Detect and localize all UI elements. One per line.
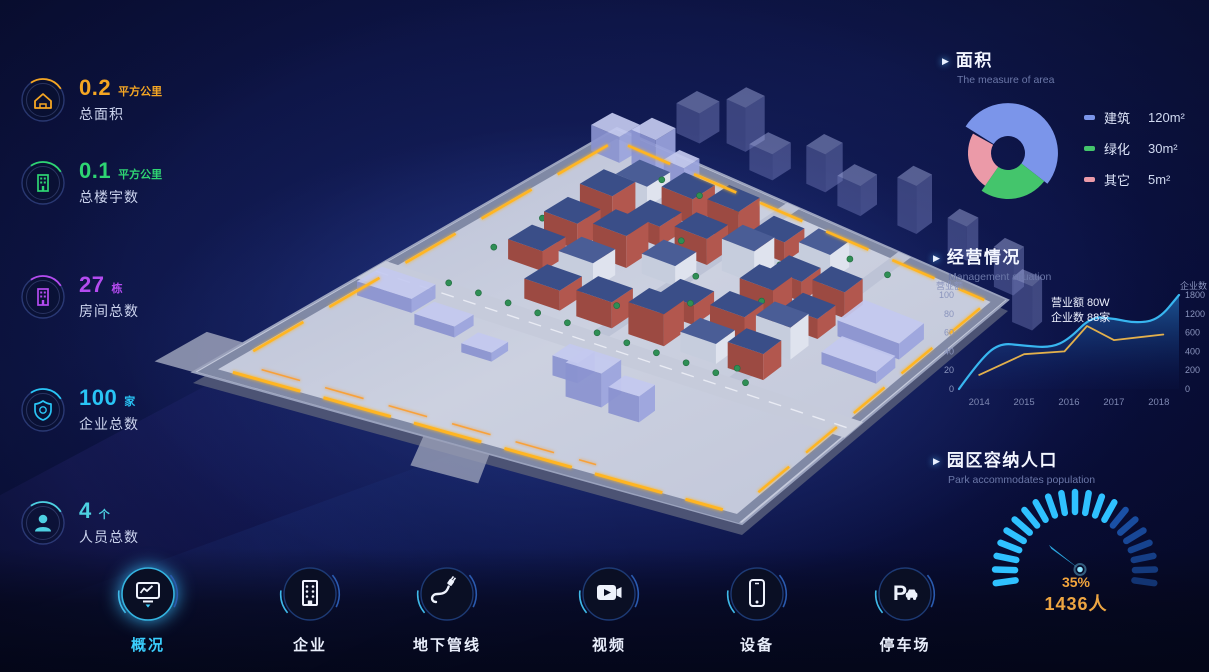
- stat-unit: 家: [124, 393, 135, 409]
- legend-value: 30m²: [1148, 141, 1178, 156]
- building-icon: [20, 160, 66, 206]
- stat-total-enterprises: 100 家 企业总数: [20, 385, 139, 434]
- svg-text:100: 100: [939, 290, 954, 300]
- stat-value: 100: [79, 385, 117, 411]
- overview-monitor-icon: [117, 563, 179, 625]
- legend-label: 其它: [1104, 170, 1148, 189]
- legend-item: 其它 5m²: [1084, 170, 1185, 189]
- population-panel-title: 园区容纳人口: [947, 451, 1058, 470]
- legend-chip: [1084, 115, 1095, 120]
- stat-unit: 平方公里: [118, 166, 162, 182]
- svg-text:2015: 2015: [1014, 397, 1035, 408]
- smart-park-dashboard: { "stats": [ { "value": "0.2", "unit": "…: [0, 0, 1209, 672]
- stat-total-area: 0.2 平方公里 总面积: [20, 75, 162, 124]
- shield-icon: [20, 387, 66, 433]
- area-panel-title: 面积: [956, 51, 993, 70]
- svg-text:2014: 2014: [969, 397, 990, 408]
- nav-item-parking[interactable]: P 停车场: [845, 563, 965, 655]
- nav-item-device[interactable]: 设备: [697, 563, 817, 655]
- nav-label: 概况: [88, 634, 208, 655]
- stat-total-rooms: 27 栋 房间总数: [20, 272, 139, 321]
- nav-label: 地下管线: [387, 634, 507, 655]
- stat-total-people: 4 个 人员总数: [20, 498, 139, 547]
- tooltip-line-revenue: 营业额 80W: [1051, 296, 1110, 311]
- stat-label: 企业总数: [79, 414, 139, 434]
- gauge-percent-value: 35%: [1016, 574, 1136, 590]
- area-panel: ▶面积 The measure of area 建筑 120m² 绿化 30m²…: [942, 46, 1207, 238]
- svg-text:60: 60: [944, 328, 954, 338]
- area-panel-subtitle: The measure of area: [957, 74, 1207, 86]
- nav-label: 视频: [549, 634, 669, 655]
- nav-label: 停车场: [845, 634, 965, 655]
- svg-text:1200: 1200: [1185, 309, 1205, 319]
- svg-text:80: 80: [944, 309, 954, 319]
- svg-text:P: P: [893, 582, 907, 605]
- business-panel: ▶经营情况 Management situation 营业额 企业数 10080…: [933, 243, 1209, 421]
- area-legend: 建筑 120m² 绿化 30m² 其它 5m²: [1084, 108, 1185, 201]
- chart-tooltip: 营业额 80W 企业数 88家: [1051, 296, 1110, 326]
- stat-unit: 平方公里: [118, 83, 162, 99]
- legend-item: 建筑 120m²: [1084, 108, 1185, 127]
- svg-text:1800: 1800: [1185, 290, 1205, 300]
- triangle-marker-icon: ▶: [933, 253, 940, 263]
- nav-label: 企业: [250, 634, 370, 655]
- svg-text:0: 0: [949, 384, 954, 394]
- underground-pipeline-icon: [416, 563, 478, 625]
- stat-value: 27: [79, 272, 104, 298]
- svg-text:20: 20: [944, 365, 954, 375]
- legend-value: 120m²: [1148, 110, 1185, 125]
- area-donut-chart: [948, 93, 1068, 213]
- nav-item-underground-pipeline[interactable]: 地下管线: [387, 563, 507, 655]
- nav-item-overview[interactable]: 概况: [88, 563, 208, 655]
- stat-value: 4: [79, 498, 92, 524]
- gauge-people-value: 1436人: [1016, 590, 1136, 616]
- population-panel: ▶园区容纳人口 Park accommodates population 35%…: [933, 446, 1209, 646]
- svg-text:200: 200: [1185, 365, 1200, 375]
- stat-label: 人员总数: [79, 527, 139, 547]
- stat-unit: 个: [99, 506, 110, 522]
- legend-chip: [1084, 146, 1095, 151]
- svg-text:0: 0: [1185, 384, 1190, 394]
- svg-text:2017: 2017: [1103, 397, 1124, 408]
- parking-icon: P: [874, 563, 936, 625]
- legend-label: 建筑: [1104, 108, 1148, 127]
- legend-label: 绿化: [1104, 139, 1148, 158]
- stat-label: 总楼宇数: [79, 187, 162, 207]
- triangle-marker-icon: ▶: [942, 56, 949, 66]
- video-camera-icon: [578, 563, 640, 625]
- svg-text:2018: 2018: [1148, 397, 1169, 408]
- svg-text:40: 40: [944, 346, 954, 356]
- svg-text:400: 400: [1185, 346, 1200, 356]
- rooms-building-icon: [20, 274, 66, 320]
- stat-unit: 栋: [111, 280, 122, 296]
- business-panel-subtitle: Management situation: [948, 271, 1209, 283]
- tooltip-line-enterprises: 企业数 88家: [1051, 311, 1110, 326]
- stat-value: 0.2: [79, 75, 111, 101]
- svg-text:2016: 2016: [1058, 397, 1079, 408]
- legend-value: 5m²: [1148, 172, 1170, 187]
- svg-text:600: 600: [1185, 328, 1200, 338]
- legend-item: 绿化 30m²: [1084, 139, 1185, 158]
- stat-label: 总面积: [79, 104, 162, 124]
- legend-chip: [1084, 177, 1095, 182]
- nav-item-video[interactable]: 视频: [549, 563, 669, 655]
- nav-item-enterprise[interactable]: 企业: [250, 563, 370, 655]
- person-icon: [20, 500, 66, 546]
- stat-value: 0.1: [79, 158, 111, 184]
- stat-label: 房间总数: [79, 301, 139, 321]
- business-panel-title: 经营情况: [947, 248, 1021, 267]
- nav-label: 设备: [697, 634, 817, 655]
- home-icon: [20, 77, 66, 123]
- enterprise-building-icon: [279, 563, 341, 625]
- triangle-marker-icon: ▶: [933, 456, 940, 466]
- stat-total-buildings: 0.1 平方公里 总楼宇数: [20, 158, 162, 207]
- device-tablet-icon: [726, 563, 788, 625]
